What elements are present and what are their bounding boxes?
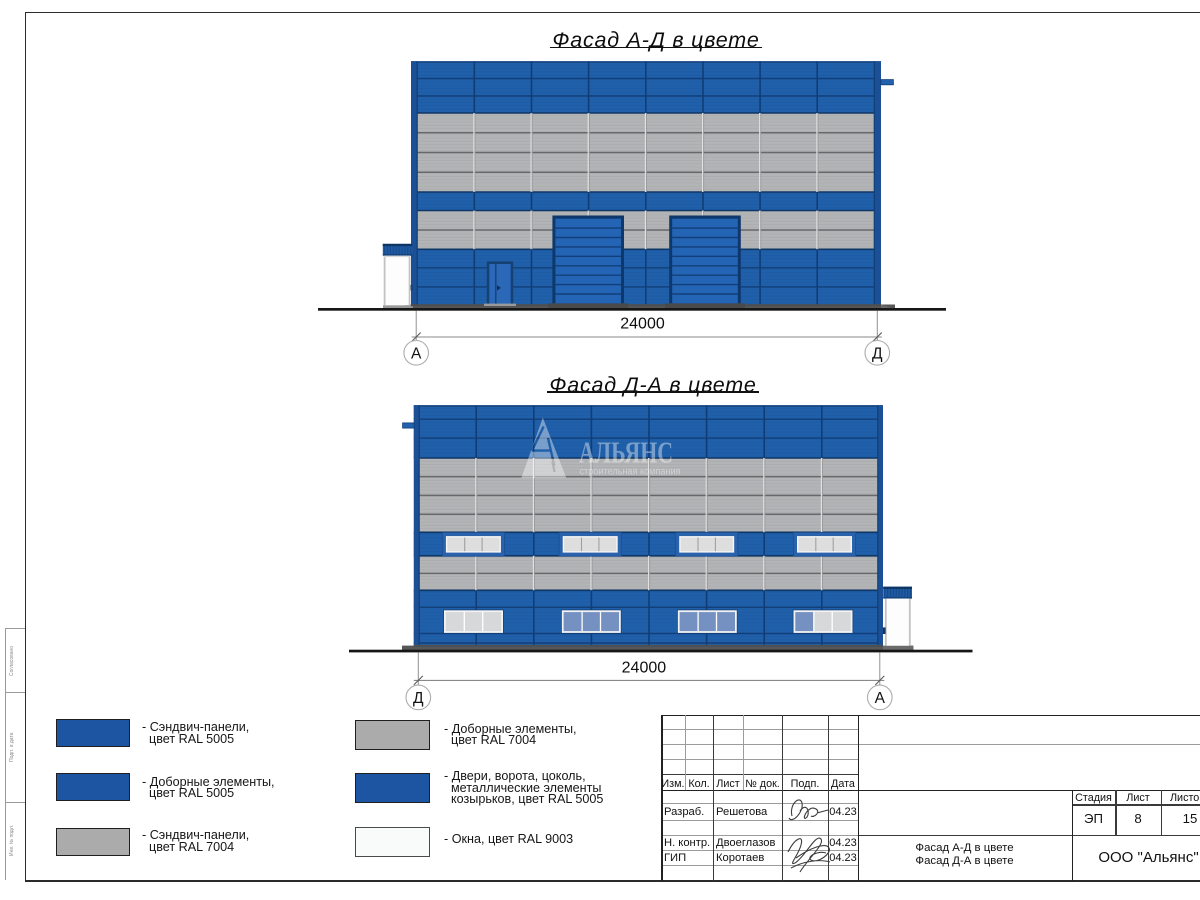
svg-text:Д: Д bbox=[872, 345, 883, 362]
svg-text:24000: 24000 bbox=[620, 316, 665, 333]
svg-text:строительная компания: строительная компания bbox=[580, 467, 681, 478]
svg-text:АЛЬЯНС: АЛЬЯНС bbox=[579, 435, 673, 470]
svg-text:А: А bbox=[875, 690, 886, 707]
svg-text:Д: Д bbox=[413, 690, 424, 707]
svg-text:А: А bbox=[411, 345, 422, 362]
svg-text:24000: 24000 bbox=[622, 660, 667, 677]
